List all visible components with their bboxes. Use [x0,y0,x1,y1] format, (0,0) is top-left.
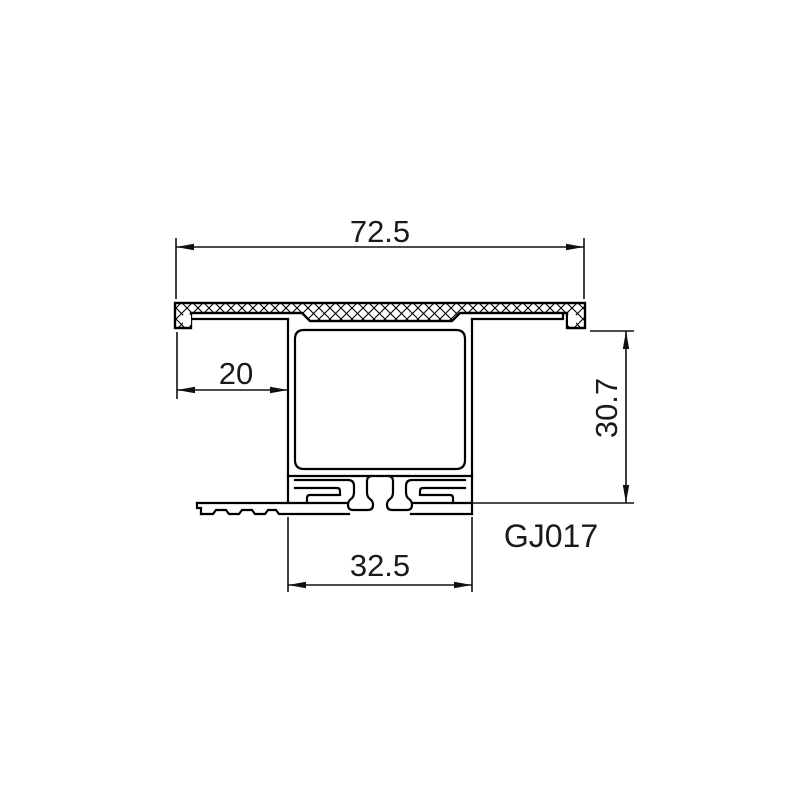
dim-30-arrow-top [623,331,629,349]
dim-label-top-width: 72.5 [350,214,410,249]
left-hook-notch [183,315,191,325]
dimension-bottom-width: 32.5 [288,517,472,592]
dim-label-bottom-width: 32.5 [350,548,410,583]
dim-32-arrow-left [288,582,306,588]
top-strip-hatch-fill [175,303,585,328]
dim-30-arrow-bottom [623,485,629,503]
left-serrated-bar-tip [197,503,201,514]
dim-20-arrow-right [270,387,288,393]
dim-top-arrow-left [176,244,194,250]
right-snap-tongue [420,488,465,503]
crosshatch-top-strip [175,303,585,328]
right-bottom-band [411,503,472,514]
left-snap-tongue [295,488,340,503]
dim-32-arrow-right [454,582,472,588]
dim-label-right-height: 30.7 [589,378,624,438]
right-shelf-stem-foot [387,476,465,510]
dim-label-left-flange: 20 [219,356,253,391]
dimension-top-width: 72.5 [176,214,584,299]
profile-technical-drawing: 72.5 20 30.7 32.5 GJ017 [0,0,800,800]
dim-top-arrow-right [566,244,584,250]
drawing-canvas: 72.5 20 30.7 32.5 GJ017 [0,0,800,800]
right-hook-notch [568,315,576,325]
left-serrated-bar-bottom [201,510,349,514]
inner-cavity-outline [295,330,465,469]
dim-20-arrow-left [177,387,195,393]
part-number-label: GJ017 [504,518,598,554]
dimension-right-height: 30.7 [472,331,634,503]
dimension-left-flange: 20 [177,332,288,399]
right-wing-lip-line [472,314,563,319]
profile-body [193,314,563,514]
left-shelf-stem-foot [295,476,373,510]
